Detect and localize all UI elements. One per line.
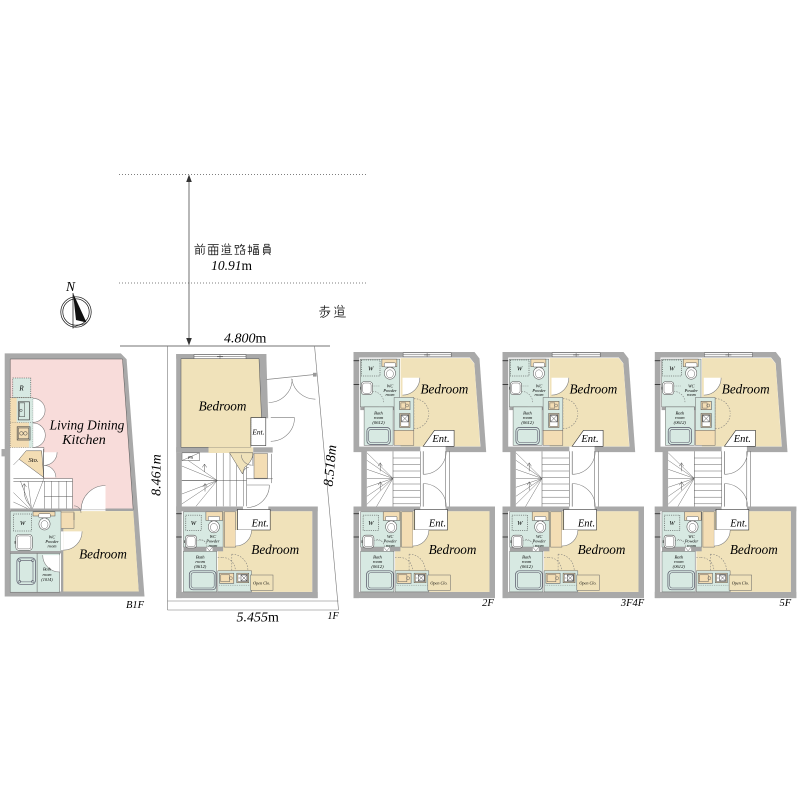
svg-text:Open Clo.: Open Clo. — [430, 581, 447, 586]
svg-text:(0612): (0612) — [371, 564, 384, 569]
svg-text:Ent.: Ent. — [577, 518, 595, 529]
svg-text:PS: PS — [187, 455, 194, 460]
svg-text:room: room — [535, 392, 544, 397]
svg-text:W: W — [517, 520, 523, 527]
svg-text:W: W — [669, 365, 675, 372]
svg-text:Living Dining: Living Dining — [49, 418, 125, 433]
svg-text:B1F: B1F — [126, 600, 145, 611]
svg-text:room: room — [48, 543, 57, 548]
svg-text:Ent.: Ent. — [431, 434, 449, 445]
svg-text:1F: 1F — [327, 611, 339, 622]
svg-text:room: room — [687, 392, 696, 397]
svg-text:Ent.: Ent. — [580, 434, 598, 445]
svg-text:Ent.: Ent. — [733, 434, 751, 445]
svg-text:Ent.: Ent. — [428, 518, 446, 529]
svg-text:5F: 5F — [779, 598, 791, 609]
svg-text:room: room — [43, 572, 52, 577]
svg-text:Open Clo.: Open Clo. — [579, 581, 596, 586]
svg-text:Open Clo.: Open Clo. — [732, 581, 749, 586]
svg-text:room: room — [535, 543, 544, 548]
svg-text:Bedroom: Bedroom — [199, 399, 247, 414]
svg-text:room: room — [208, 543, 217, 548]
svg-text:Bath: Bath — [43, 567, 51, 572]
svg-text:4.800: 4.800 — [224, 332, 256, 347]
svg-text:W: W — [368, 520, 374, 527]
svg-text:W: W — [191, 520, 197, 527]
svg-text:W: W — [669, 520, 675, 527]
svg-text:Bedroom: Bedroom — [420, 382, 468, 397]
svg-text:W: W — [368, 365, 374, 372]
svg-text:(1014): (1014) — [41, 577, 53, 582]
svg-text:Bedroom: Bedroom — [578, 542, 626, 557]
svg-text:Ent.: Ent. — [729, 518, 747, 529]
svg-text:Bedroom: Bedroom — [429, 542, 477, 557]
svg-text:Bedroom: Bedroom — [251, 542, 299, 557]
svg-text:room: room — [386, 543, 395, 548]
svg-text:8.461m: 8.461m — [150, 454, 165, 496]
svg-text:(0612): (0612) — [673, 564, 686, 569]
svg-text:W: W — [517, 365, 523, 372]
svg-text:Bedroom: Bedroom — [79, 547, 127, 562]
svg-text:(0612): (0612) — [194, 564, 207, 569]
svg-text:(0612): (0612) — [520, 564, 533, 569]
svg-text:m: m — [268, 611, 279, 626]
svg-text:room: room — [386, 392, 395, 397]
svg-text:N: N — [65, 279, 76, 294]
svg-text:Ent.: Ent. — [251, 518, 269, 529]
svg-text:(0612): (0612) — [372, 420, 385, 425]
svg-text:R: R — [18, 385, 24, 393]
svg-text:3F4F: 3F4F — [620, 598, 645, 609]
svg-text:Bedroom: Bedroom — [730, 542, 778, 557]
svg-text:Sto.: Sto. — [29, 457, 39, 464]
svg-text:W: W — [20, 520, 26, 527]
svg-text:2F: 2F — [482, 598, 494, 609]
svg-text:m: m — [256, 332, 267, 347]
svg-text:5.455: 5.455 — [237, 611, 269, 626]
svg-text:Open Clo.: Open Clo. — [253, 581, 270, 586]
svg-text:(0612): (0612) — [674, 420, 687, 425]
svg-text:(0612): (0612) — [521, 420, 534, 425]
svg-text:Kitchen: Kitchen — [61, 433, 106, 448]
svg-text:room: room — [687, 543, 696, 548]
svg-text:m: m — [242, 258, 253, 273]
svg-text:Ent.: Ent. — [251, 428, 264, 437]
svg-text:Bedroom: Bedroom — [722, 382, 770, 397]
svg-text:10.91: 10.91 — [211, 258, 241, 273]
svg-text:Bedroom: Bedroom — [569, 382, 617, 397]
